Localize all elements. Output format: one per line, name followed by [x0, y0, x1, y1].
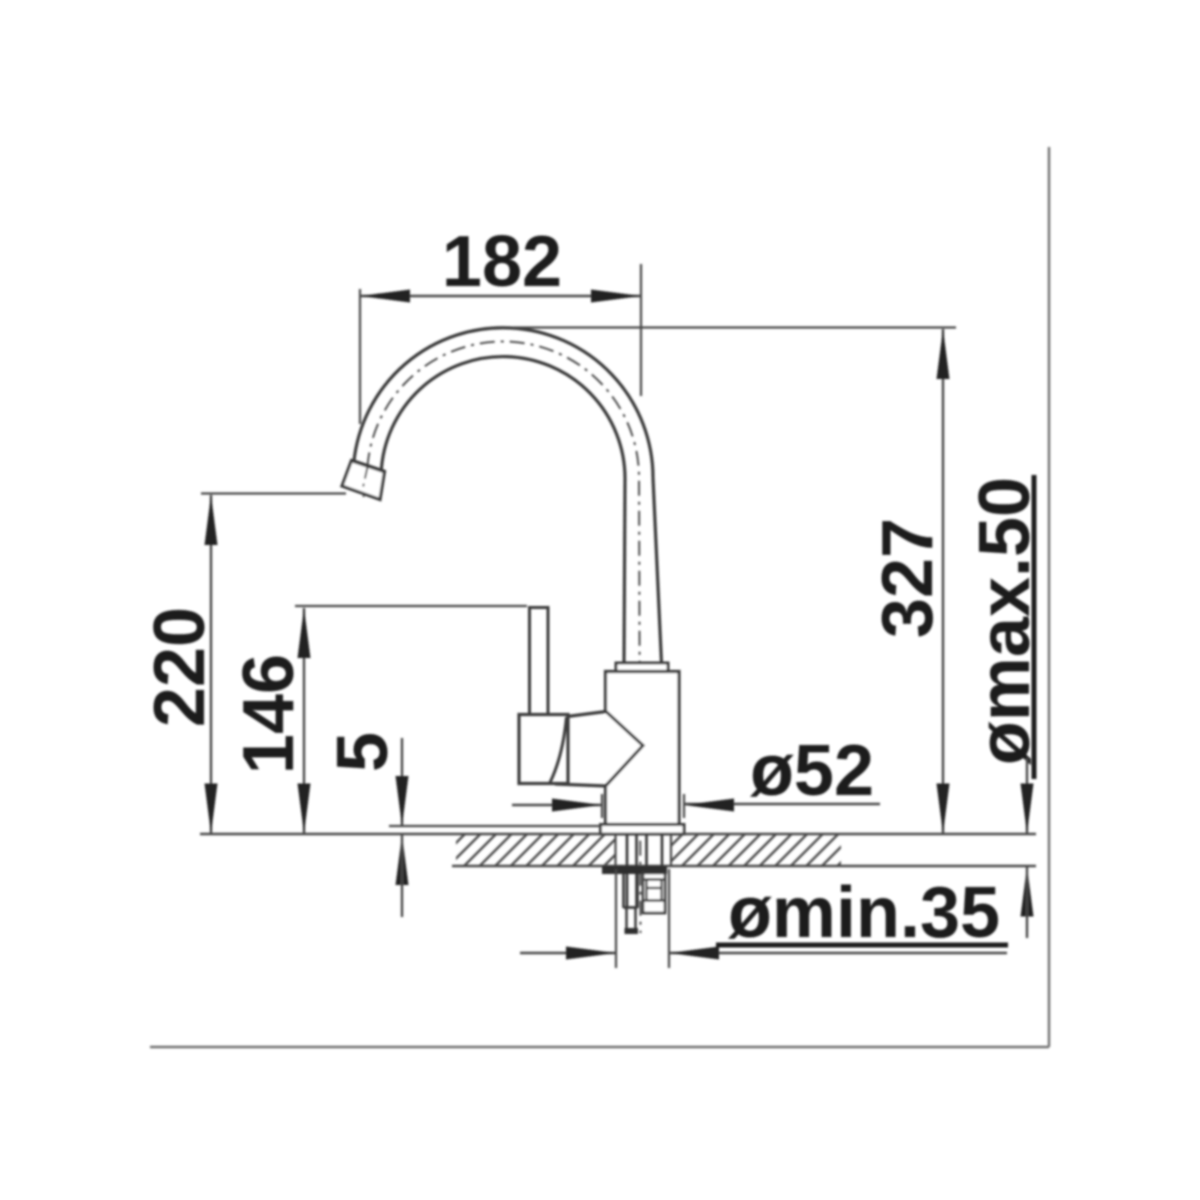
svg-text:5: 5 — [323, 732, 403, 772]
svg-text:ø52: ø52 — [750, 731, 874, 811]
svg-text:182: 182 — [442, 222, 562, 302]
svg-text:220: 220 — [140, 607, 220, 727]
svg-text:327: 327 — [868, 518, 948, 638]
svg-text:ømin.35: ømin.35 — [728, 873, 1000, 953]
svg-text:146: 146 — [229, 654, 309, 774]
